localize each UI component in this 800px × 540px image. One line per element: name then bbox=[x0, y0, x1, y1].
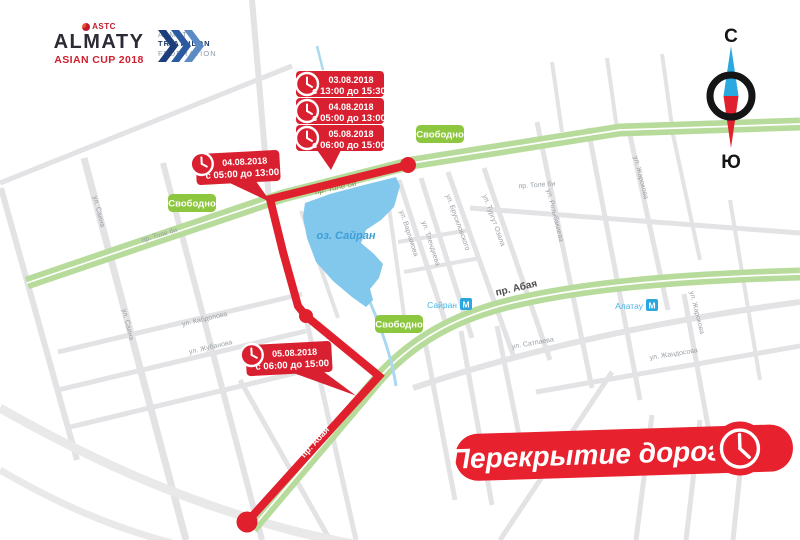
metro-station-sairan: Сайран М bbox=[427, 298, 472, 310]
callout-date: 04.08.2018 bbox=[328, 102, 373, 112]
callout-time: с 06:00 до 15:00 bbox=[312, 140, 386, 151]
street-road bbox=[470, 208, 800, 233]
sairan-lake bbox=[303, 177, 400, 307]
compass-north-needle bbox=[724, 46, 739, 96]
route-endpoint-dot bbox=[237, 512, 258, 533]
metro-station-alatau: Алатау М bbox=[615, 299, 658, 311]
closure-callout-south: 05.08.2018 с 06:00 до 15:00 bbox=[240, 339, 356, 402]
free-badge-label: Свободно bbox=[375, 320, 423, 331]
free-badge-label: Свободно bbox=[416, 130, 464, 141]
callout-tail bbox=[317, 150, 341, 170]
street-road bbox=[552, 62, 562, 132]
street-road bbox=[662, 54, 672, 126]
street-road bbox=[404, 258, 480, 272]
street-label: ул. Саина bbox=[91, 195, 106, 228]
free-traffic-badge: Свободно bbox=[375, 315, 423, 333]
astc-label: ASTC bbox=[92, 22, 116, 31]
route-endpoint-dot bbox=[299, 309, 313, 323]
lake-label: оз. Сайран bbox=[317, 230, 376, 242]
callout-date: 05.08.2018 bbox=[328, 129, 373, 139]
callout-time: с 05:00 до 13:00 bbox=[312, 113, 386, 124]
free-badge-label: Свободно bbox=[168, 199, 216, 210]
metro-name: Алатау bbox=[615, 301, 644, 311]
metro-symbol: М bbox=[462, 300, 469, 310]
street-road bbox=[424, 336, 455, 500]
street-road bbox=[607, 58, 617, 129]
street-road bbox=[448, 172, 515, 360]
callout-date: 03.08.2018 bbox=[328, 75, 373, 85]
free-traffic-badge: Свободно bbox=[168, 194, 216, 212]
metro-name: Сайран bbox=[427, 300, 457, 310]
compass: С Ю bbox=[710, 26, 752, 173]
street-road bbox=[588, 128, 640, 400]
logo-subtitle: ASIAN CUP 2018 bbox=[44, 54, 154, 66]
closure-callout-stack: 03.08.2018 с 13:00 до 15:30 04.08.2018 с… bbox=[296, 71, 386, 170]
triathlon-federation-logo: ALMATY TRIATHLON FEDERATION bbox=[158, 30, 217, 58]
street-road bbox=[484, 168, 550, 360]
map-canvas: оз. Сайран пр. Толе би пр. Толе би пр. Т… bbox=[0, 0, 800, 540]
federation-chevrons-icon bbox=[158, 30, 204, 62]
astc-almaty-logo: ASTC ALMATY ASIAN CUP 2018 bbox=[44, 22, 154, 66]
road-closure-map: оз. Сайран пр. Толе би пр. Толе би пр. Т… bbox=[0, 0, 800, 540]
river-line bbox=[317, 46, 323, 70]
route-endpoint-dot bbox=[400, 157, 416, 173]
free-traffic-badge: Свободно bbox=[416, 125, 464, 143]
astc-icon bbox=[82, 23, 90, 31]
compass-north-label: С bbox=[724, 26, 738, 47]
road-closure-banner: Перекрытие дорог bbox=[449, 420, 794, 485]
logo-title: ALMATY bbox=[44, 31, 154, 53]
compass-south-label: Ю bbox=[721, 152, 741, 173]
metro-symbol: М bbox=[648, 301, 655, 311]
street-road bbox=[672, 130, 700, 260]
street-road bbox=[58, 294, 302, 352]
tolebi-avenue-road bbox=[27, 124, 800, 283]
street-label: ул. Жандосова bbox=[649, 347, 698, 362]
callout-time: с 13:00 до 15:30 bbox=[312, 86, 386, 97]
